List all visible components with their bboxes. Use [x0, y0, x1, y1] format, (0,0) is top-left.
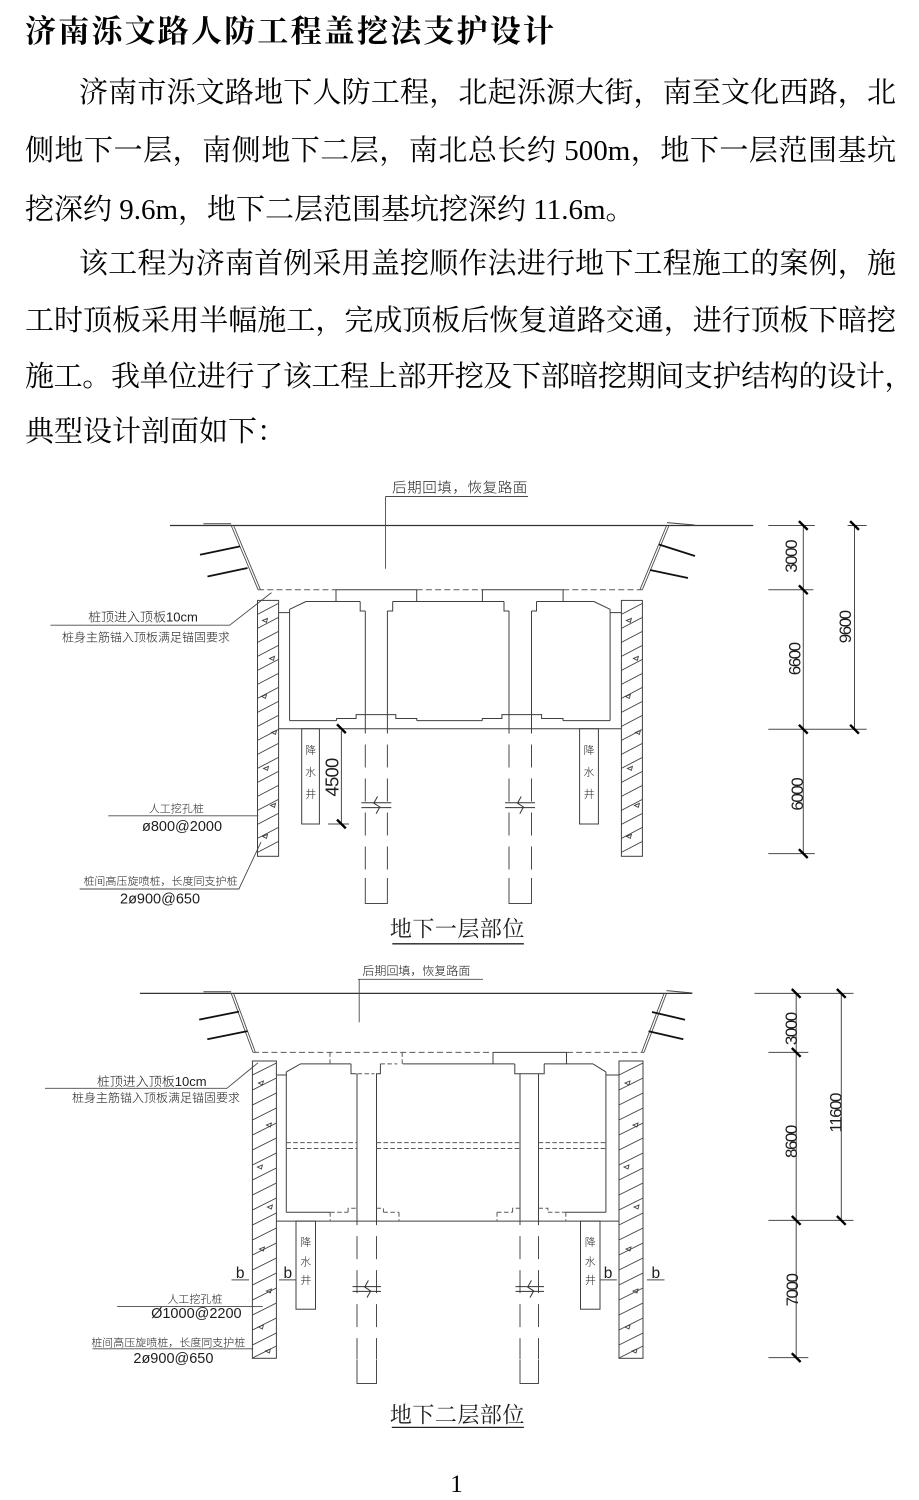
svg-text:7000: 7000 — [783, 1274, 802, 1307]
svg-text:b: b — [283, 1265, 292, 1282]
svg-text:水: 水 — [584, 767, 595, 779]
svg-text:井: 井 — [305, 789, 316, 801]
svg-text:桩顶进入顶板10cm: 桩顶进入顶板10cm — [88, 610, 198, 625]
svg-text:降: 降 — [584, 744, 595, 757]
svg-text:桩顶进入顶板10cm: 桩顶进入顶板10cm — [97, 1074, 207, 1089]
svg-text:b: b — [651, 1265, 660, 1282]
svg-text:降: 降 — [585, 1236, 596, 1249]
svg-text:3000: 3000 — [782, 540, 801, 573]
svg-text:桩身主筋锚入顶板满足锚固要求: 桩身主筋锚入顶板满足锚固要求 — [62, 631, 230, 645]
svg-text:水: 水 — [585, 1257, 596, 1269]
svg-text:水: 水 — [300, 1257, 311, 1269]
svg-text:b: b — [236, 1265, 245, 1282]
svg-text:桩身主筋锚入顶板满足锚固要求: 桩身主筋锚入顶板满足锚固要求 — [72, 1091, 240, 1105]
svg-text:8600: 8600 — [782, 1125, 801, 1158]
svg-text:井: 井 — [584, 789, 595, 801]
svg-text:井: 井 — [585, 1275, 596, 1287]
svg-text:人工挖孔桩: 人工挖孔桩 — [167, 1293, 222, 1306]
svg-text:ø800@2000: ø800@2000 — [142, 819, 222, 835]
svg-text:后期回填，恢复路面: 后期回填，恢复路面 — [362, 964, 470, 978]
svg-text:人工挖孔桩: 人工挖孔桩 — [149, 803, 204, 816]
svg-text:6000: 6000 — [788, 778, 807, 811]
svg-text:2ø900@650: 2ø900@650 — [120, 892, 200, 908]
svg-text:11600: 11600 — [826, 1093, 845, 1133]
svg-text:桩间高压旋喷桩，长度同支护桩: 桩间高压旋喷桩，长度同支护桩 — [84, 875, 238, 888]
svg-text:b: b — [604, 1265, 613, 1282]
svg-text:9600: 9600 — [836, 610, 855, 643]
svg-text:后期回填，恢复路面: 后期回填，恢复路面 — [392, 480, 528, 497]
svg-text:降: 降 — [300, 1236, 311, 1249]
svg-text:井: 井 — [300, 1275, 311, 1287]
svg-text:地下二层部位: 地下二层部位 — [390, 1402, 525, 1427]
svg-text:地下一层部位: 地下一层部位 — [390, 916, 525, 941]
svg-text:6600: 6600 — [785, 642, 804, 675]
svg-text:4500: 4500 — [322, 758, 343, 796]
svg-text:桩间高压旋喷桩，长度同支护桩: 桩间高压旋喷桩，长度同支护桩 — [91, 1337, 245, 1350]
svg-text:Ø1000@2200: Ø1000@2200 — [151, 1306, 242, 1322]
svg-text:降: 降 — [305, 744, 316, 757]
svg-text:水: 水 — [305, 767, 316, 779]
svg-text:2ø900@650: 2ø900@650 — [133, 1351, 213, 1367]
svg-text:3000: 3000 — [782, 1012, 801, 1045]
